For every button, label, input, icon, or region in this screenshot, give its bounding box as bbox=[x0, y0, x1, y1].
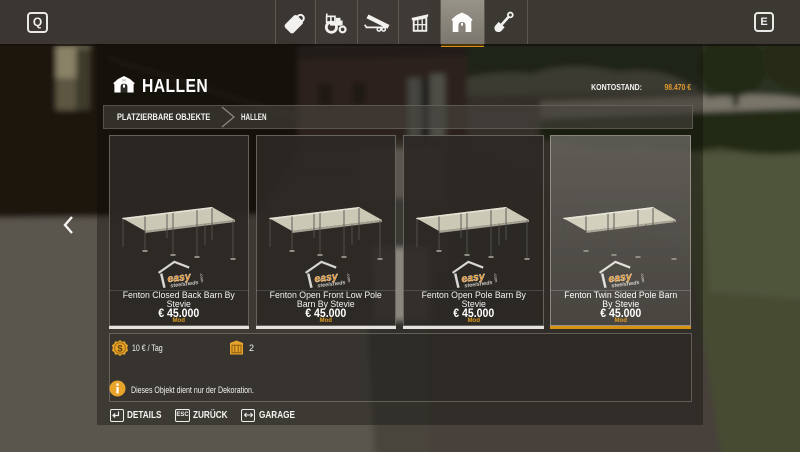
svg-text:.com: .com bbox=[640, 273, 646, 283]
svg-text:.com: .com bbox=[198, 273, 204, 283]
svg-text:.com: .com bbox=[493, 273, 499, 283]
svg-text:$: $ bbox=[117, 343, 123, 354]
svg-text:.com: .com bbox=[346, 273, 352, 283]
